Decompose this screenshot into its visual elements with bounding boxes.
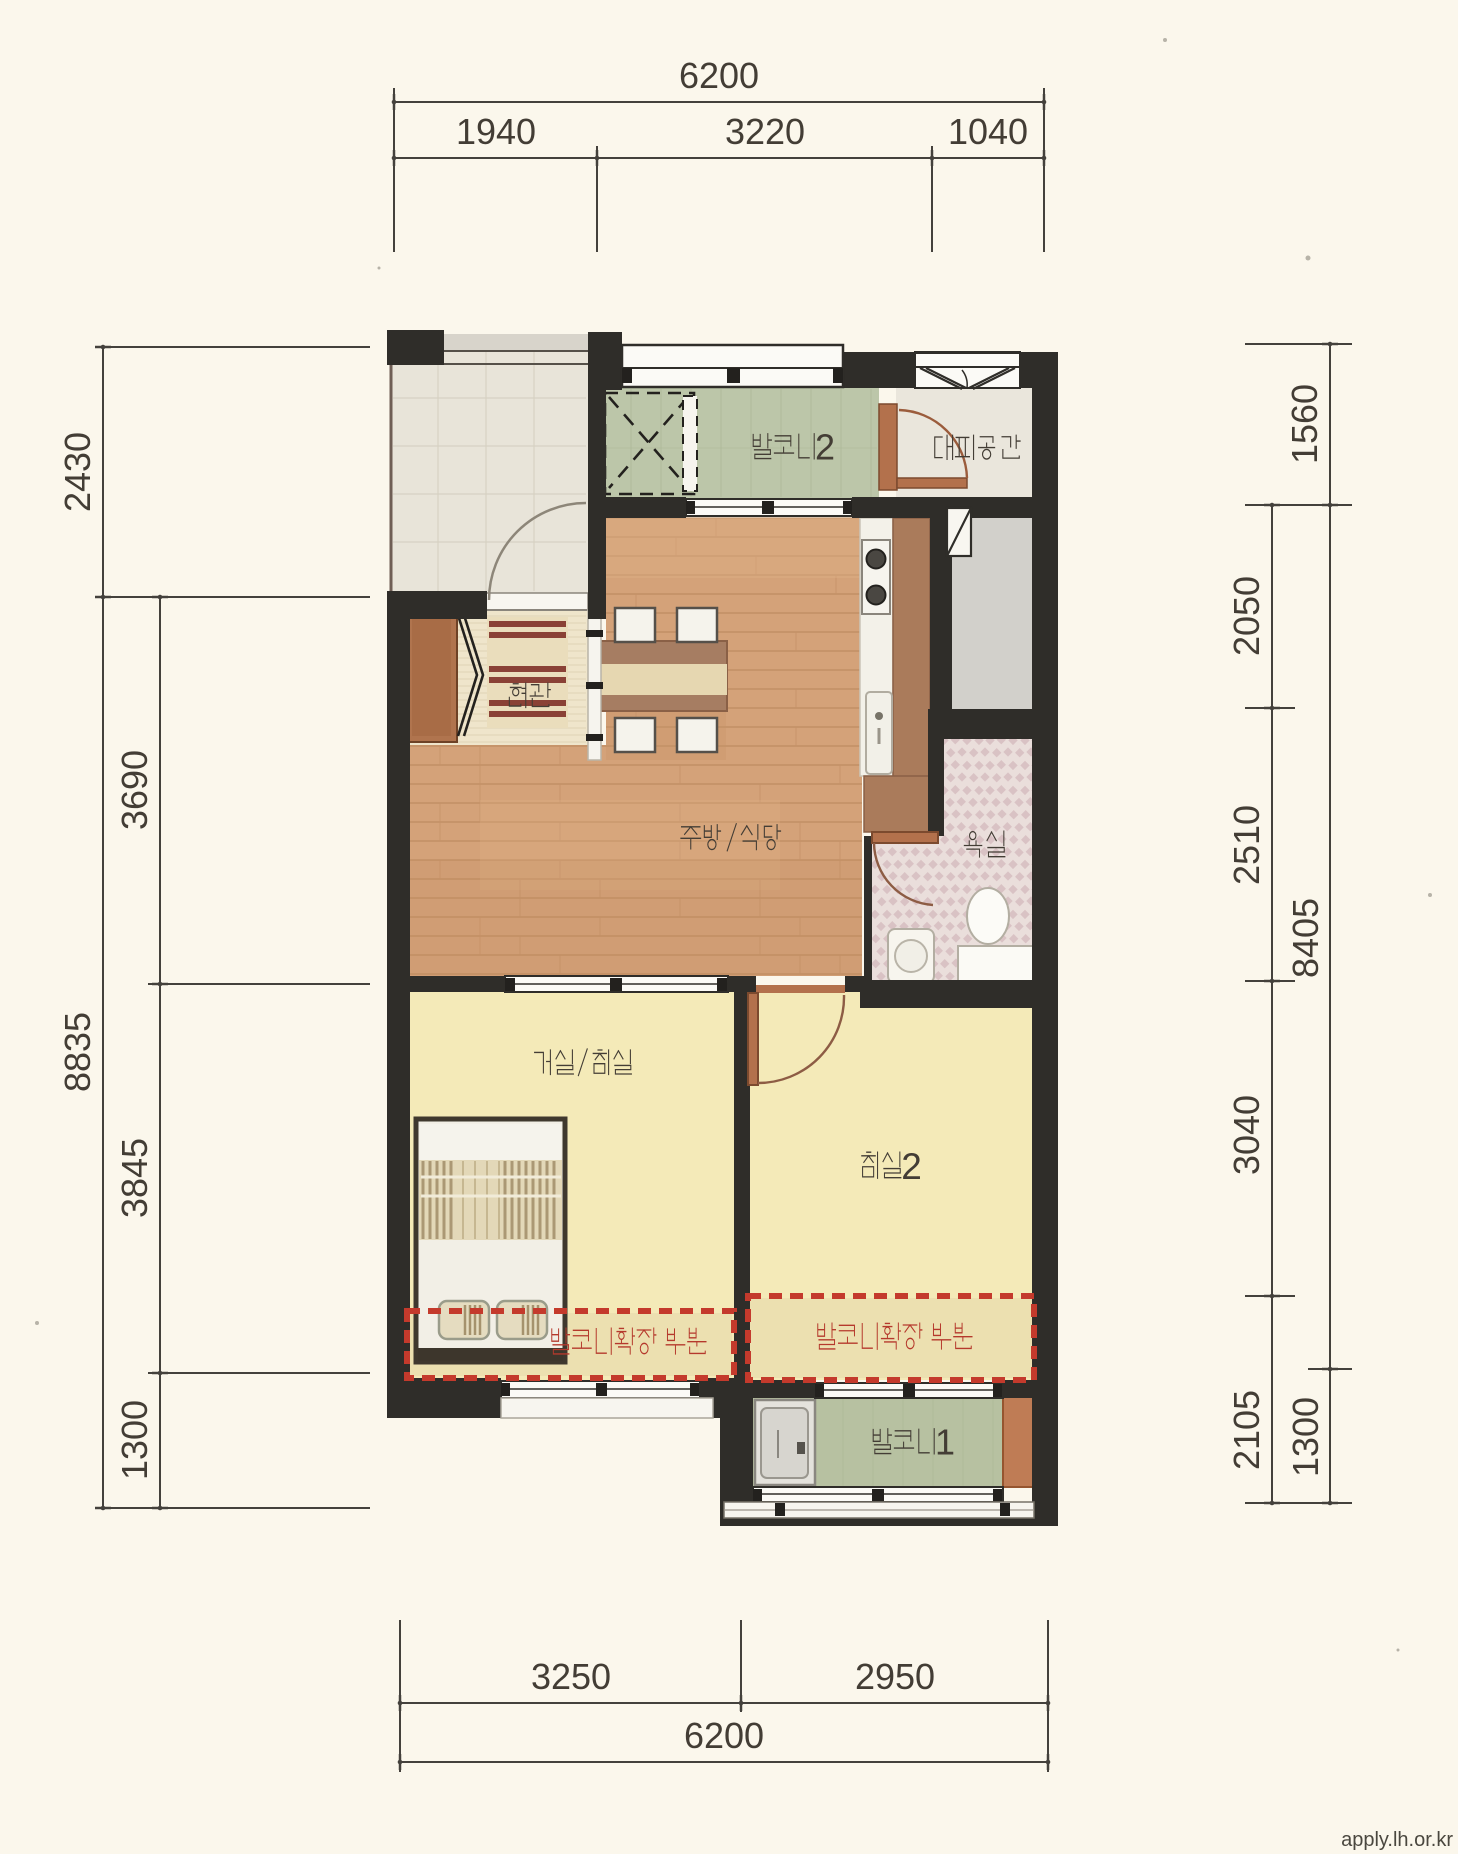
svg-text:8405: 8405 (1285, 898, 1326, 978)
svg-text:2430: 2430 (57, 432, 98, 512)
svg-text:1300: 1300 (1285, 1397, 1326, 1477)
svg-text:3845: 3845 (114, 1138, 155, 1218)
svg-text:6200: 6200 (679, 55, 759, 96)
svg-text:2: 2 (901, 1146, 922, 1187)
svg-text:1300: 1300 (114, 1400, 155, 1480)
svg-text:3220: 3220 (725, 111, 805, 152)
svg-text:2105: 2105 (1226, 1390, 1267, 1470)
svg-text:2050: 2050 (1226, 576, 1267, 656)
svg-text:3250: 3250 (531, 1656, 611, 1697)
svg-text:8835: 8835 (57, 1012, 98, 1092)
svg-text:2: 2 (815, 427, 835, 468)
svg-text:2510: 2510 (1226, 805, 1267, 885)
svg-text:1560: 1560 (1284, 384, 1325, 464)
svg-text:6200: 6200 (684, 1715, 764, 1756)
svg-text:1: 1 (935, 1422, 955, 1463)
svg-text:3040: 3040 (1226, 1095, 1267, 1175)
svg-text:1040: 1040 (948, 111, 1028, 152)
svg-text:3690: 3690 (114, 750, 155, 830)
svg-text:2950: 2950 (855, 1656, 935, 1697)
svg-text:1940: 1940 (456, 111, 536, 152)
svg-text:apply.lh.or.kr: apply.lh.or.kr (1341, 1829, 1453, 1851)
